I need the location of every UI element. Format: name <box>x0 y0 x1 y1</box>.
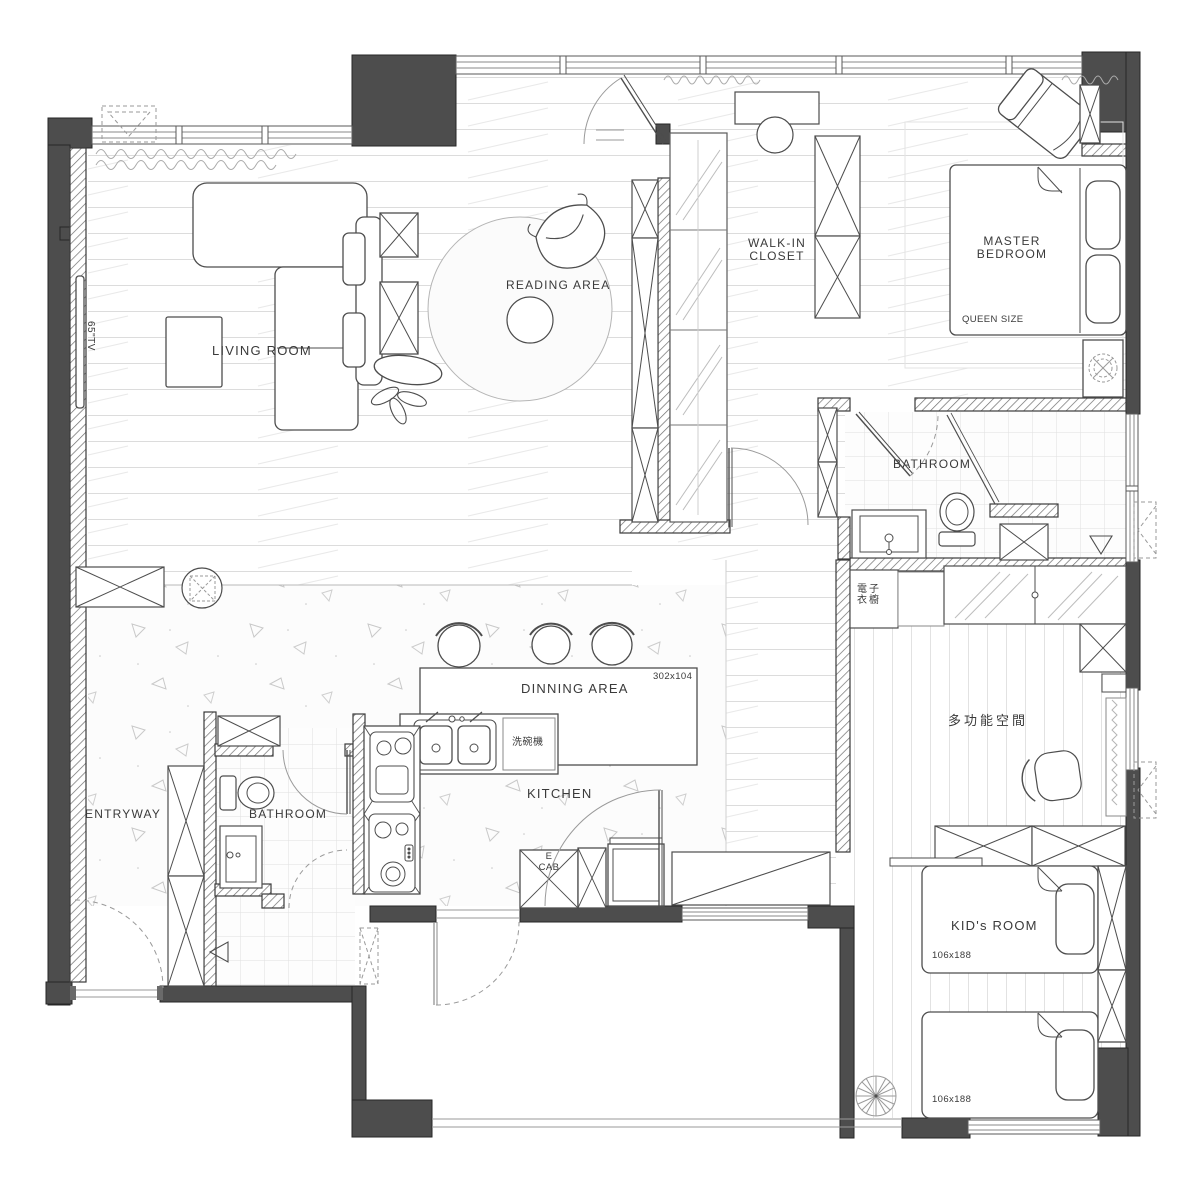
kids-room-label: KID's ROOM <box>951 919 1038 934</box>
wall-bedroom-notch <box>1082 144 1126 156</box>
guest-toilet <box>220 776 274 810</box>
electronic-wardrobe-label: 電子衣櫥 <box>857 584 881 606</box>
washer <box>1000 524 1048 560</box>
balcony-rail <box>432 1119 902 1127</box>
wall-step-vertical <box>352 986 366 1118</box>
plant <box>856 1076 896 1116</box>
multipurpose-label: 多功能空間 <box>948 714 1028 729</box>
window-top-right <box>456 56 1082 74</box>
entryway-label: ENTRYWAY <box>85 808 161 821</box>
pillow <box>1086 255 1120 323</box>
floor-plan: 65"TV LIVING ROOM READING AREA WALK-INCL… <box>0 0 1200 1200</box>
pillow <box>1056 884 1094 954</box>
reading-area-label: READING AREA <box>506 279 610 292</box>
tall-cabinet-column <box>168 766 204 986</box>
guest-vanity <box>220 826 262 888</box>
bath-north-cabinet <box>218 716 280 746</box>
window-top-left <box>92 126 352 144</box>
sliding-wardrobe <box>944 566 1126 624</box>
window-corridor-south <box>682 908 808 920</box>
wall-kids-left <box>840 906 854 1138</box>
corner-wardrobe <box>1080 85 1100 143</box>
kids-wardrobe <box>1098 866 1126 1042</box>
guest-bathroom-label: BATHROOM <box>249 808 327 821</box>
wall-entry-south <box>160 986 362 1002</box>
wall-bath-north-right <box>915 398 1126 411</box>
pillow <box>1086 181 1120 249</box>
kids-bed1-size: 106x188 <box>932 951 971 962</box>
window-multi-right <box>1126 688 1138 770</box>
window-kids-bottom <box>968 1120 1100 1134</box>
stove-counter <box>364 726 420 894</box>
queen-size-label: QUEEN SIZE <box>962 315 1024 326</box>
sliding-door-panel <box>672 852 830 905</box>
pillow <box>1056 1030 1094 1100</box>
entry-door-swing <box>75 900 163 988</box>
master-bedroom-label: MASTERBEDROOM <box>962 235 1062 262</box>
wall-guestbath-west <box>204 712 216 986</box>
wall-guestbath-step <box>262 894 284 908</box>
toilet <box>939 493 975 546</box>
wall-step-bottom <box>352 1100 432 1137</box>
shelf <box>890 858 982 866</box>
desk <box>1106 698 1126 816</box>
wall-kids-bottom <box>902 1118 970 1138</box>
balcony-door-threshold <box>437 910 519 918</box>
e-cab-label: ECAB <box>531 852 567 873</box>
kitchen-label: KITCHEN <box>527 787 592 802</box>
wall-corridor-south <box>808 906 854 928</box>
bath-vanity <box>852 510 926 558</box>
living-room-label: LIVING ROOM <box>212 344 312 359</box>
entry-door-threshold <box>70 986 163 1000</box>
sofa-side-tables <box>380 213 418 354</box>
wall-block-closet-door <box>656 124 670 144</box>
wall-left <box>48 145 70 1005</box>
wall-bathhall-stub <box>838 517 850 559</box>
vent-balcony <box>360 928 378 984</box>
kitchen-sink-2 <box>376 766 408 794</box>
master-bathroom-label: BATHROOM <box>893 458 971 471</box>
vanity-stool <box>757 117 793 153</box>
walk-in-closet-label: WALK-INCLOSET <box>737 237 817 264</box>
balcony-door <box>434 922 519 1005</box>
closet-cabinet-column <box>632 180 658 522</box>
wall-shower-stub <box>990 504 1058 517</box>
floor-lamp <box>507 297 553 343</box>
dining-size-label: 302x104 <box>653 672 692 683</box>
dishwasher-label: 洗碗機 <box>512 737 544 748</box>
entry-shoe-cabinet <box>76 567 164 607</box>
wall-top-column <box>352 55 456 146</box>
wall-kitchen-south-left <box>370 906 436 922</box>
wall-kitchen-west <box>353 714 365 894</box>
closet-island <box>815 136 860 318</box>
closet-shelving <box>670 133 727 522</box>
window-bath-right <box>1126 414 1138 562</box>
floor-plan-drawing <box>0 0 1200 1200</box>
dining-area-label: DINNING AREA <box>521 682 629 697</box>
kids-bed2-size: 106x188 <box>932 1095 971 1106</box>
hall-wardrobe <box>818 408 837 517</box>
wall-corridor-east <box>836 560 850 852</box>
tv-unit <box>76 276 84 408</box>
wall-left-inner <box>70 148 86 982</box>
wall-top-left-corner <box>48 118 92 148</box>
wall-entry-corner <box>46 982 72 1004</box>
fridge <box>608 838 664 906</box>
tv-label: 65"TV <box>85 321 96 351</box>
wall-closet-divider <box>658 178 670 522</box>
structural-column <box>182 568 222 608</box>
wall-bottom-right-corner <box>1098 1048 1128 1136</box>
wall-right-upper <box>1126 52 1140 414</box>
reading-nook-floor <box>456 74 656 178</box>
cabinet-filler <box>898 572 944 626</box>
nightstand-hamper <box>1083 340 1123 397</box>
wall-right-mid <box>1126 560 1140 690</box>
